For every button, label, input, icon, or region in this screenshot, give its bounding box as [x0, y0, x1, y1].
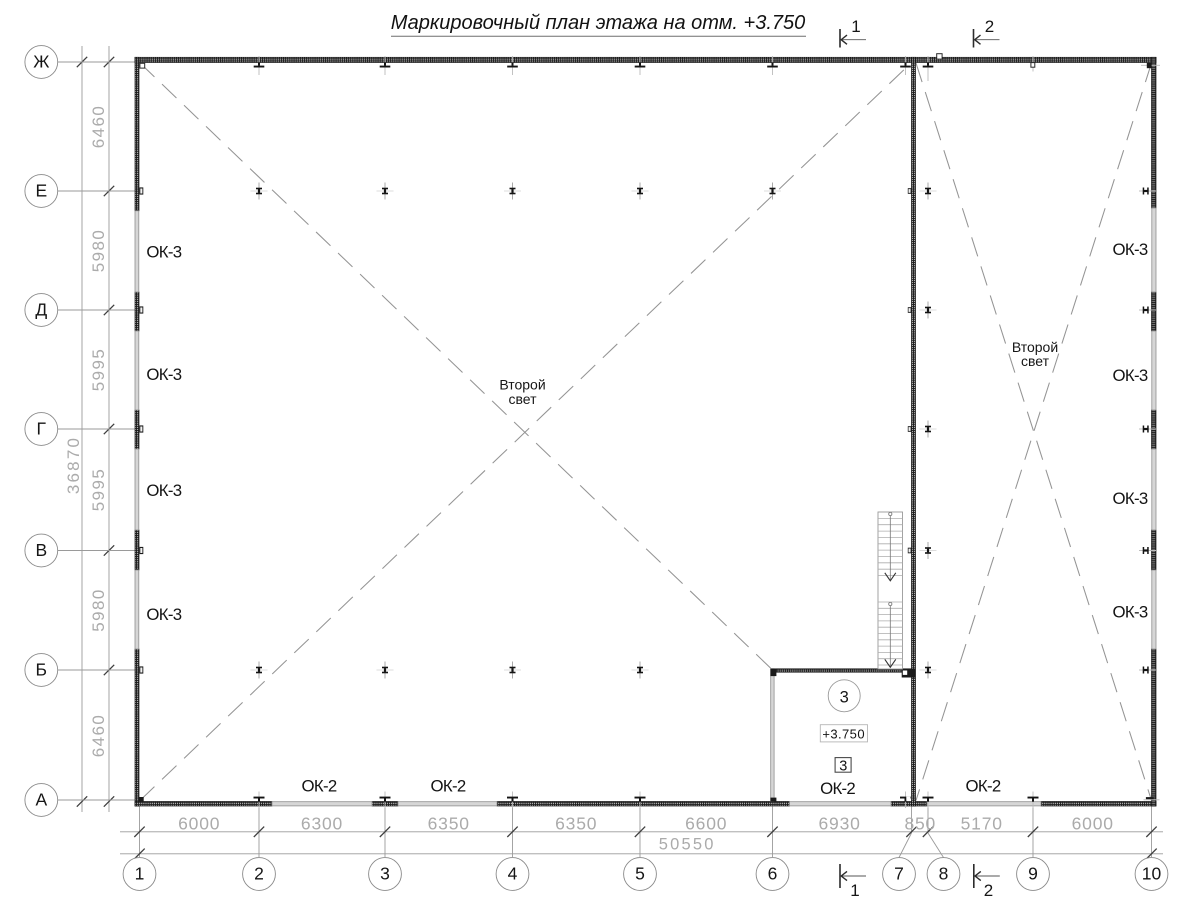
svg-text:ОК-2: ОК-2 [431, 776, 466, 795]
svg-text:ОК-3: ОК-3 [146, 481, 181, 500]
svg-text:5980: 5980 [89, 229, 108, 272]
svg-text:6460: 6460 [89, 105, 108, 148]
svg-text:5: 5 [635, 864, 645, 884]
svg-text:свет: свет [508, 391, 537, 407]
svg-text:ОК-3: ОК-3 [1113, 489, 1148, 508]
svg-text:Е: Е [35, 181, 47, 201]
svg-text:ОК-2: ОК-2 [820, 779, 855, 798]
svg-text:9: 9 [1028, 864, 1038, 884]
svg-text:А: А [35, 790, 47, 810]
svg-text:Г: Г [37, 419, 47, 439]
svg-text:3: 3 [840, 688, 849, 706]
svg-text:1: 1 [851, 17, 860, 36]
svg-text:8: 8 [939, 864, 949, 884]
svg-text:7: 7 [894, 864, 904, 884]
svg-text:6000: 6000 [178, 813, 220, 833]
svg-text:ОК-3: ОК-3 [146, 365, 181, 384]
svg-text:6350: 6350 [428, 813, 470, 833]
svg-text:6600: 6600 [685, 813, 727, 833]
svg-text:3: 3 [380, 864, 390, 884]
svg-text:Маркировочный план этажа на от: Маркировочный план этажа на отм. +3.750 [391, 12, 806, 34]
svg-text:3: 3 [839, 758, 847, 774]
svg-text:50550: 50550 [659, 836, 716, 854]
svg-text:5980: 5980 [89, 588, 108, 631]
svg-text:10: 10 [1142, 864, 1162, 884]
svg-text:6930: 6930 [819, 813, 861, 833]
svg-text:ОК-3: ОК-3 [146, 605, 181, 624]
svg-text:Ж: Ж [33, 52, 49, 72]
svg-text:36870: 36870 [64, 436, 83, 494]
svg-text:ОК-2: ОК-2 [302, 776, 337, 795]
svg-text:1: 1 [135, 864, 145, 884]
svg-text:5995: 5995 [89, 468, 108, 511]
svg-text:ОК-3: ОК-3 [1113, 366, 1148, 385]
svg-text:5995: 5995 [89, 348, 108, 391]
svg-text:5170: 5170 [961, 813, 1003, 833]
svg-text:2: 2 [985, 17, 994, 36]
svg-text:1: 1 [850, 881, 859, 900]
svg-text:В: В [35, 540, 47, 560]
svg-text:2: 2 [254, 864, 264, 884]
svg-text:Д: Д [35, 300, 47, 320]
svg-text:4: 4 [508, 864, 518, 884]
svg-text:6000: 6000 [1072, 813, 1114, 833]
svg-text:2: 2 [984, 881, 993, 900]
svg-text:Б: Б [36, 660, 47, 680]
svg-text:свет: свет [1021, 353, 1050, 369]
svg-text:ОК-3: ОК-3 [1113, 240, 1148, 259]
svg-text:6350: 6350 [555, 813, 597, 833]
svg-text:6300: 6300 [301, 813, 343, 833]
svg-text:+3.750: +3.750 [822, 726, 865, 741]
svg-text:850: 850 [904, 813, 936, 833]
svg-text:ОК-3: ОК-3 [146, 243, 181, 262]
svg-text:ОК-3: ОК-3 [1113, 603, 1148, 622]
svg-text:6: 6 [768, 864, 778, 884]
svg-text:6460: 6460 [89, 714, 108, 757]
svg-text:ОК-2: ОК-2 [966, 777, 1001, 796]
